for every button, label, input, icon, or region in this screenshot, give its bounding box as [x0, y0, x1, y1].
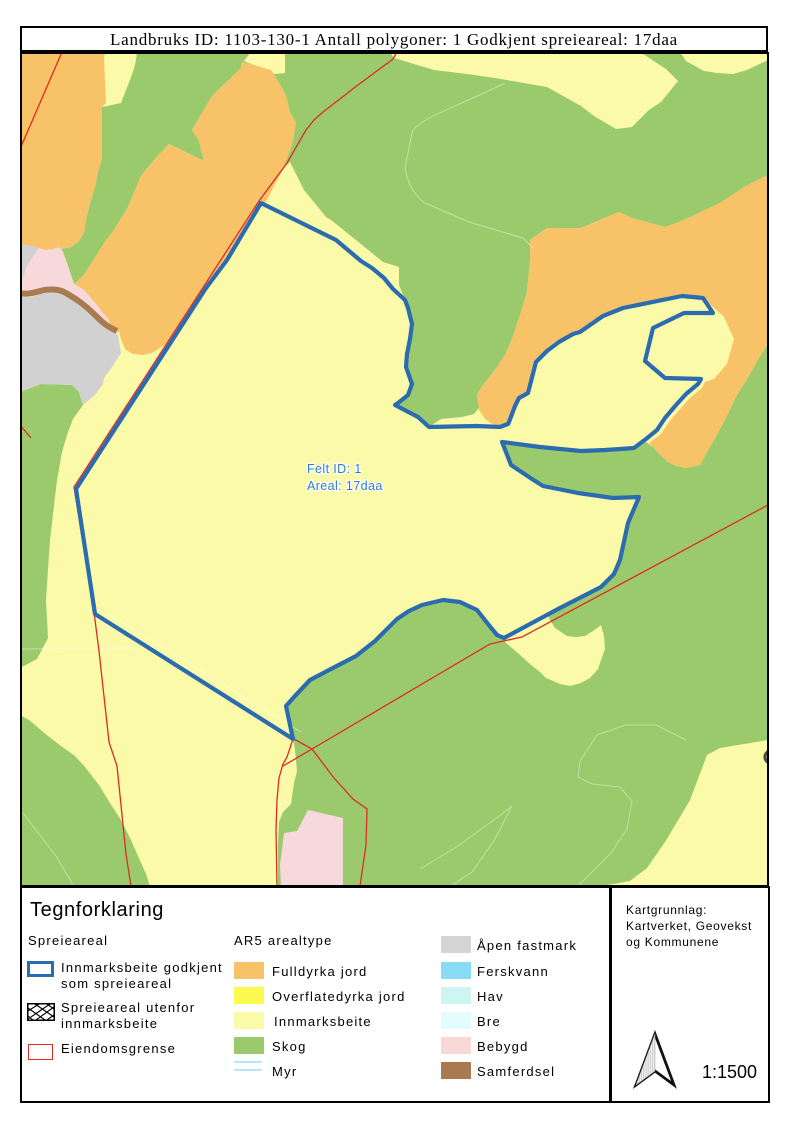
svg-text:Felt ID: 1: Felt ID: 1 — [307, 462, 362, 476]
svg-text:Areal: 17daa: Areal: 17daa — [307, 479, 383, 493]
